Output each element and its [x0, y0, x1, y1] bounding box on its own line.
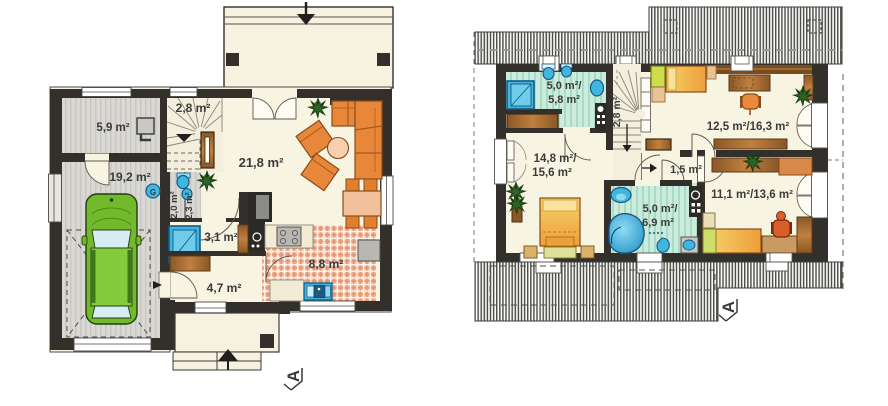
svg-text:4,7 m²: 4,7 m²: [207, 281, 242, 295]
svg-text:19,2 m²: 19,2 m²: [109, 170, 150, 184]
svg-text:5,0 m²/: 5,0 m²/: [547, 80, 582, 92]
svg-text:2,8 m²: 2,8 m²: [611, 96, 623, 127]
svg-text:5,8 m²: 5,8 m²: [548, 94, 580, 106]
svg-text:8,8 m²: 8,8 m²: [309, 257, 344, 271]
svg-text:5,9 m²: 5,9 m²: [96, 122, 129, 134]
svg-text:6,9 m²: 6,9 m²: [642, 217, 674, 229]
svg-text:5,0 m²/: 5,0 m²/: [643, 203, 678, 215]
svg-text:12,5 m²/16,3 m²: 12,5 m²/16,3 m²: [707, 121, 790, 133]
svg-text:3,1 m²: 3,1 m²: [204, 232, 237, 244]
svg-text:2,0 m²: 2,0 m²: [169, 191, 180, 218]
svg-text:G: G: [150, 188, 156, 197]
svg-text:A: A: [285, 370, 303, 382]
svg-text:1,5 m²: 1,5 m²: [670, 164, 702, 176]
svg-text:11,1 m²/13,6 m²: 11,1 m²/13,6 m²: [711, 189, 793, 201]
svg-text:14,8 m²/: 14,8 m²/: [534, 153, 578, 165]
svg-text:2,3 m²: 2,3 m²: [184, 192, 195, 219]
svg-text:A: A: [720, 301, 738, 313]
svg-text:15,6 m²: 15,6 m²: [532, 167, 572, 179]
svg-text:21,8 m²: 21,8 m²: [239, 155, 284, 170]
svg-text:2,8 m²: 2,8 m²: [176, 101, 211, 115]
